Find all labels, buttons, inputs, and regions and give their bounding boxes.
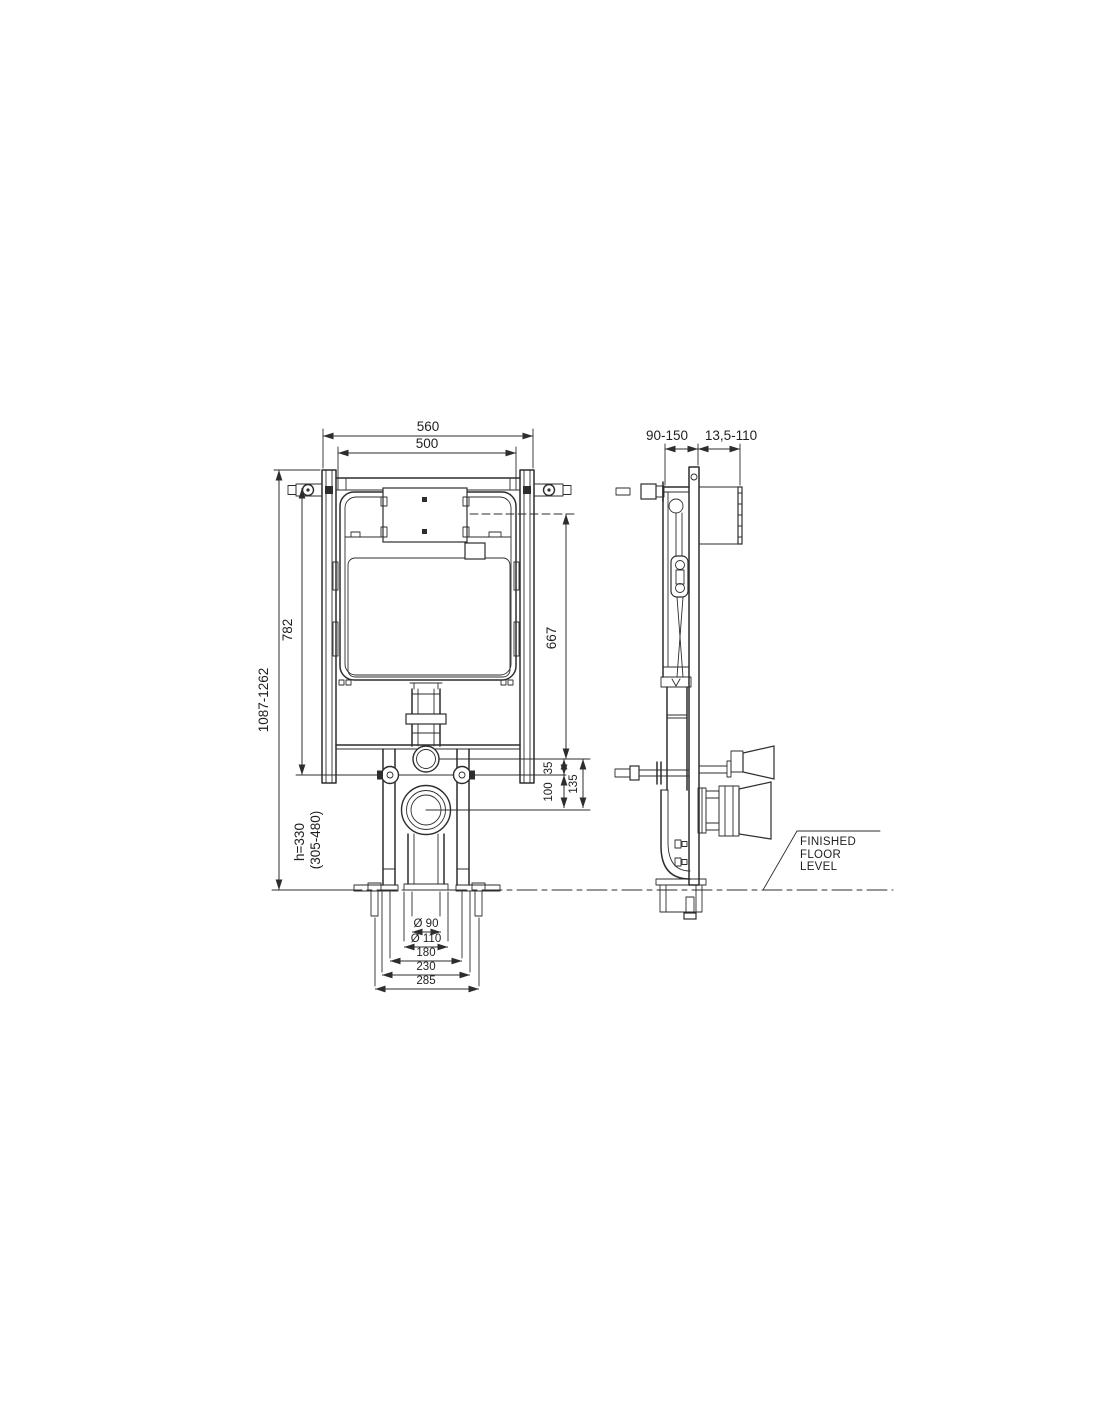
dim-leg-spacing: 230 — [416, 961, 435, 973]
dim-flush-plate-height: 667 — [544, 627, 559, 650]
right-wall-bracket — [534, 484, 571, 496]
dim-wall-offset: 90-150 — [646, 428, 688, 443]
dim-drain-height-range: (305-480) — [308, 811, 323, 870]
dim-drain-diameter-inner: Ø 90 — [414, 918, 439, 930]
dim-frame-height: 782 — [280, 619, 295, 642]
drain-connector — [698, 782, 771, 839]
drain-outlet — [402, 786, 591, 835]
dim-anchor-spacing: 285 — [416, 975, 435, 987]
wc-frame-installation-drawing: FINISHED FLOOR LEVEL 560 500 1087-1262 7… — [0, 0, 1100, 1422]
flush-pipe-port — [413, 746, 439, 772]
dim-flush-to-bolt: 35 — [543, 762, 555, 775]
finished-floor-label-3: LEVEL — [800, 861, 838, 873]
dim-overall-width: 560 — [417, 419, 440, 434]
dim-plate-depth: 13,5-110 — [705, 428, 757, 443]
fixing-plate — [671, 556, 688, 597]
dimensions: 560 500 1087-1262 782 h=330 (305-480) 66… — [256, 419, 757, 989]
dim-drain-height-note: h=330 — [292, 823, 307, 861]
right-floor-anchor — [475, 891, 482, 916]
dim-bolt-spacing: 180 — [416, 947, 435, 959]
cistern-side — [661, 487, 691, 687]
side-rail — [689, 467, 699, 885]
overflow-box — [465, 543, 485, 559]
wall-section-hatch — [699, 487, 742, 544]
floor-level: FINISHED FLOOR LEVEL — [272, 831, 893, 890]
left-wall-bracket — [288, 484, 322, 496]
right-rail — [520, 470, 534, 783]
dim-drain-diameter-outer: Ø 110 — [411, 933, 441, 945]
side-view — [615, 467, 774, 919]
left-rail-bolt — [325, 486, 333, 494]
technical-drawing-page: FINISHED FLOOR LEVEL 560 500 1087-1262 7… — [0, 0, 1100, 1422]
right-rail-bolt — [523, 486, 531, 494]
dim-cistern-width: 500 — [416, 436, 439, 451]
wall-anchor-rod — [615, 762, 689, 784]
floor-socket — [656, 879, 706, 919]
water-inlet-valve — [616, 482, 664, 501]
rail-adjust-bolts — [675, 840, 687, 866]
flush-pipe — [406, 689, 446, 746]
dim-bolt-to-drain: 100 — [543, 782, 555, 801]
finished-floor-label-1: FINISHED — [800, 836, 856, 848]
cistern — [333, 488, 519, 689]
flush-bend-pipe — [661, 687, 690, 879]
left-floor-anchor — [371, 891, 378, 916]
left-rail — [322, 470, 336, 783]
front-view — [288, 470, 590, 941]
flush-pipe-connector — [699, 746, 774, 779]
finished-floor-label-2: FLOOR — [800, 849, 841, 861]
dim-overall-height: 1087-1262 — [256, 668, 271, 733]
dim-flush-to-drain: 135 — [568, 774, 580, 793]
